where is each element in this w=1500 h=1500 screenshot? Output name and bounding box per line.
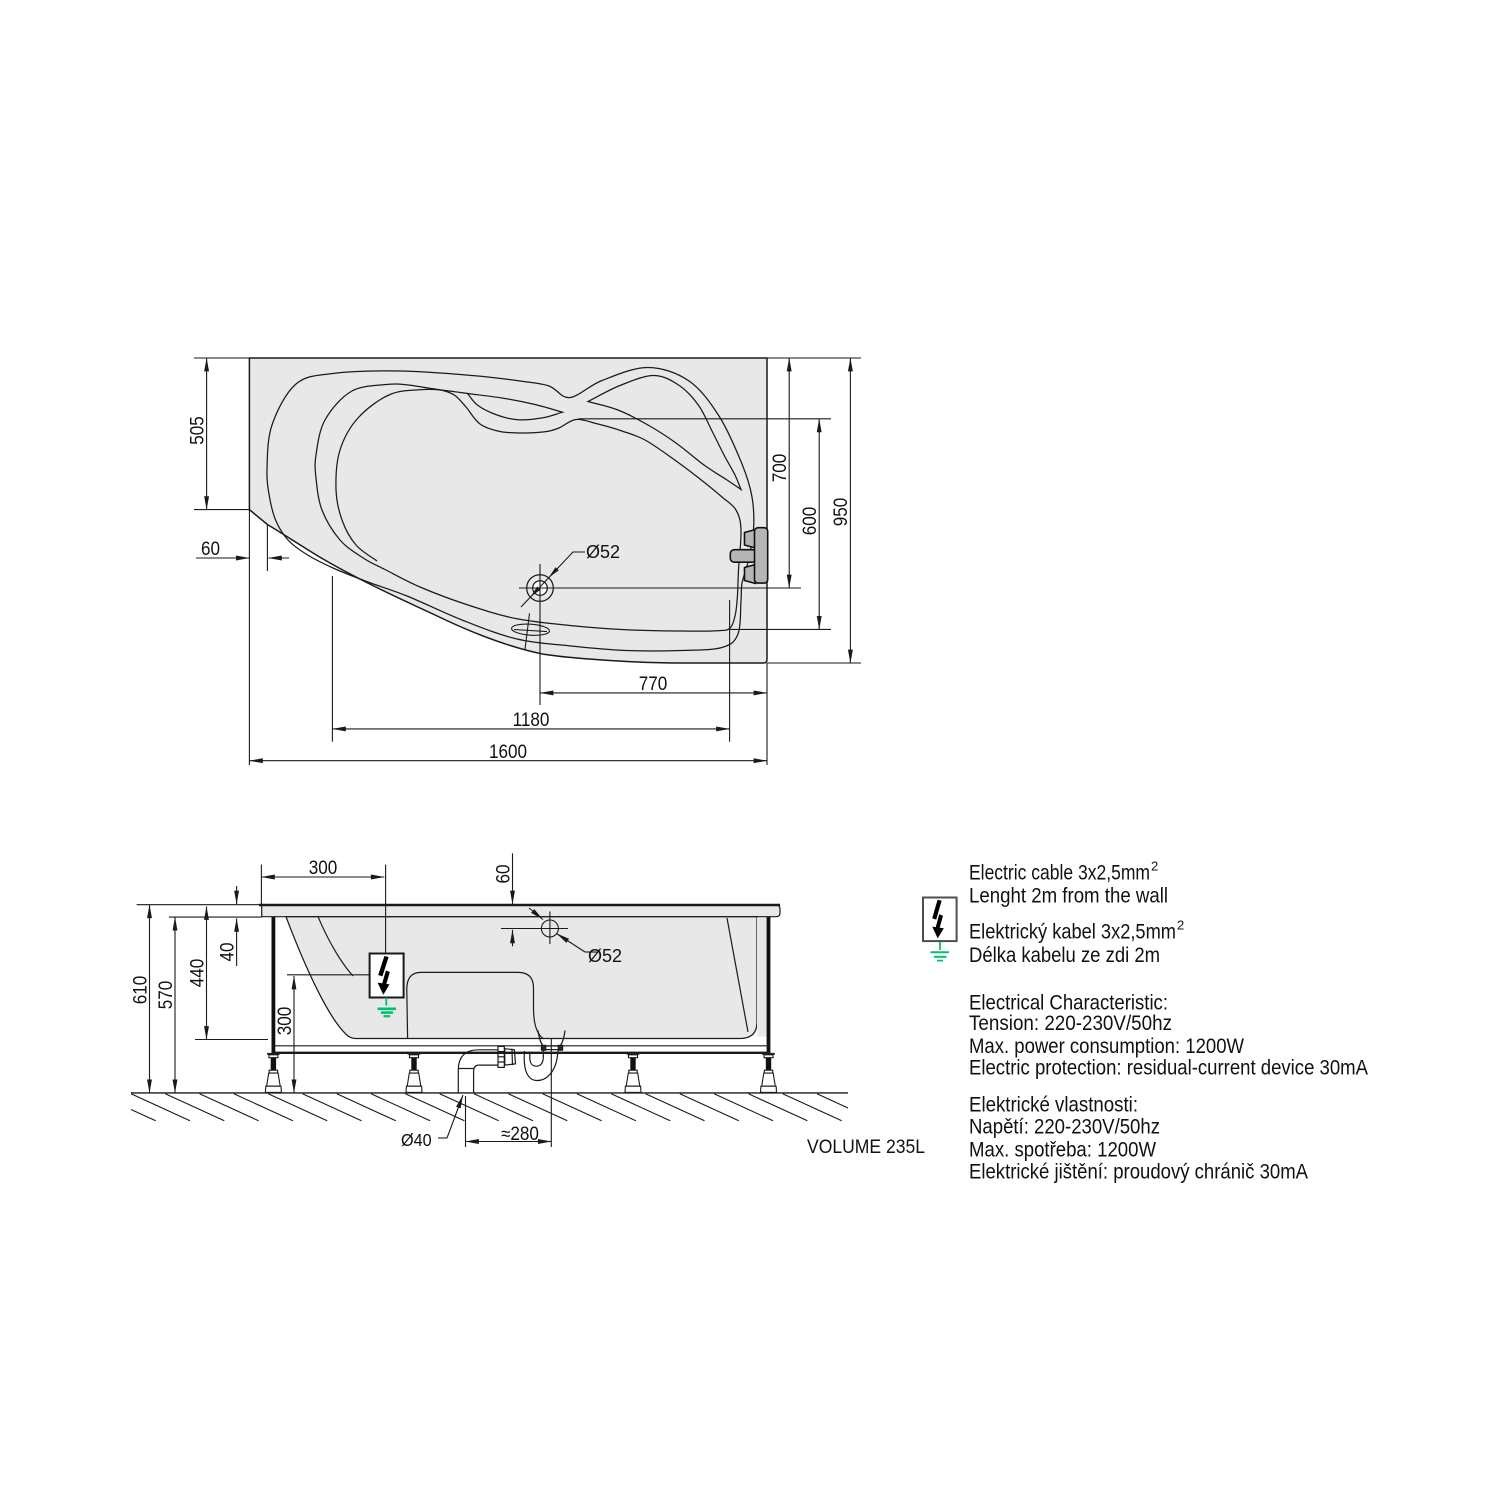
svg-text:610: 610	[129, 976, 150, 1005]
svg-text:Elektrické jištění: proudový c: Elektrické jištění: proudový chránič 30m…	[969, 1160, 1308, 1183]
svg-text:440: 440	[186, 959, 207, 988]
svg-text:Ø52: Ø52	[586, 542, 620, 562]
svg-text:2: 2	[1151, 858, 1158, 873]
svg-text:300: 300	[309, 857, 338, 878]
svg-text:Electric protection: residual-: Electric protection: residual-current de…	[969, 1057, 1368, 1080]
svg-text:60: 60	[201, 538, 220, 559]
svg-text:570: 570	[155, 981, 176, 1010]
svg-text:VOLUME 235L: VOLUME 235L	[807, 1135, 925, 1157]
svg-text:1600: 1600	[489, 741, 527, 762]
svg-text:300: 300	[274, 1007, 295, 1036]
svg-text:Lenght 2m from the wall: Lenght 2m from the wall	[969, 885, 1168, 908]
svg-text:Elektrické vlastnosti:: Elektrické vlastnosti:	[969, 1093, 1138, 1116]
svg-text:Tension: 220-230V/50hz: Tension: 220-230V/50hz	[969, 1012, 1172, 1035]
svg-text:770: 770	[639, 673, 668, 694]
svg-text:Ø40: Ø40	[401, 1130, 432, 1150]
svg-text:Délka kabelu ze zdi 2m: Délka kabelu ze zdi 2m	[969, 944, 1160, 967]
svg-text:Max. spotřeba: 1200W: Max. spotřeba: 1200W	[969, 1138, 1156, 1161]
svg-text:Elektrický kabel 3x2,5mm: Elektrický kabel 3x2,5mm	[969, 921, 1176, 944]
svg-text:700: 700	[769, 454, 790, 483]
svg-text:Napětí: 220-230V/50hz: Napětí: 220-230V/50hz	[969, 1115, 1160, 1138]
svg-text:Electrical Characteristic:: Electrical Characteristic:	[969, 991, 1168, 1014]
svg-text:505: 505	[187, 416, 208, 445]
svg-text:≈280: ≈280	[501, 1123, 539, 1144]
svg-text:2: 2	[1177, 918, 1184, 933]
svg-text:60: 60	[492, 864, 513, 883]
svg-text:600: 600	[799, 507, 820, 536]
svg-text:40: 40	[217, 942, 238, 961]
svg-text:Electric cable 3x2,5mm: Electric cable 3x2,5mm	[969, 861, 1150, 884]
svg-text:950: 950	[830, 498, 851, 527]
svg-text:Ø52: Ø52	[588, 946, 622, 966]
svg-text:Max. power consumption: 1200W: Max. power consumption: 1200W	[969, 1035, 1244, 1058]
svg-text:1180: 1180	[513, 709, 550, 730]
